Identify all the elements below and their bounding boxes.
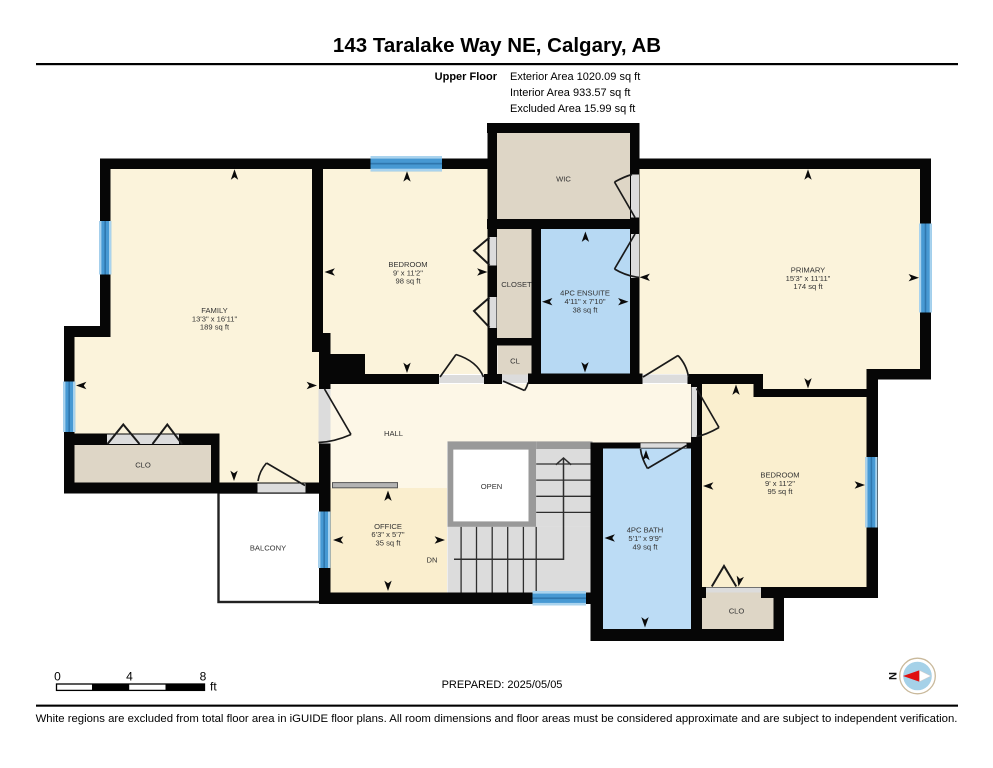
svg-text:174 sq ft: 174 sq ft (793, 282, 823, 291)
svg-text:4: 4 (126, 670, 133, 684)
svg-text:98 sq ft: 98 sq ft (396, 277, 422, 286)
svg-text:OPEN: OPEN (481, 482, 503, 491)
svg-text:143 Taralake Way NE, Calgary,: 143 Taralake Way NE, Calgary, AB (333, 34, 661, 57)
svg-text:CL: CL (510, 357, 520, 366)
svg-text:Upper Floor: Upper Floor (435, 71, 498, 83)
svg-text:38 sq ft: 38 sq ft (573, 305, 599, 314)
svg-text:DN: DN (427, 556, 438, 565)
svg-text:BALCONY: BALCONY (250, 544, 286, 553)
svg-text:HALL: HALL (384, 429, 403, 438)
svg-text:PREPARED: 2025/05/05: PREPARED: 2025/05/05 (442, 679, 563, 691)
svg-text:N: N (887, 672, 899, 680)
svg-text:ft: ft (210, 680, 217, 694)
svg-text:95 sq ft: 95 sq ft (768, 487, 794, 496)
svg-text:CLO: CLO (729, 607, 745, 616)
svg-text:0: 0 (54, 670, 61, 684)
svg-text:49 sq ft: 49 sq ft (633, 542, 659, 551)
svg-text:Interior Area 933.57 sq ft: Interior Area 933.57 sq ft (510, 87, 630, 99)
svg-text:8: 8 (200, 670, 207, 684)
svg-text:White regions are excluded fro: White regions are excluded from total fl… (36, 713, 958, 725)
svg-text:Exterior Area 1020.09 sq ft: Exterior Area 1020.09 sq ft (510, 71, 640, 83)
svg-text:CLO: CLO (135, 461, 151, 470)
svg-text:Excluded Area 15.99 sq ft: Excluded Area 15.99 sq ft (510, 103, 635, 115)
svg-text:WIC: WIC (556, 175, 571, 184)
svg-text:CLOSET: CLOSET (501, 280, 532, 289)
svg-text:189 sq ft: 189 sq ft (200, 323, 230, 332)
svg-text:35 sq ft: 35 sq ft (376, 538, 402, 547)
